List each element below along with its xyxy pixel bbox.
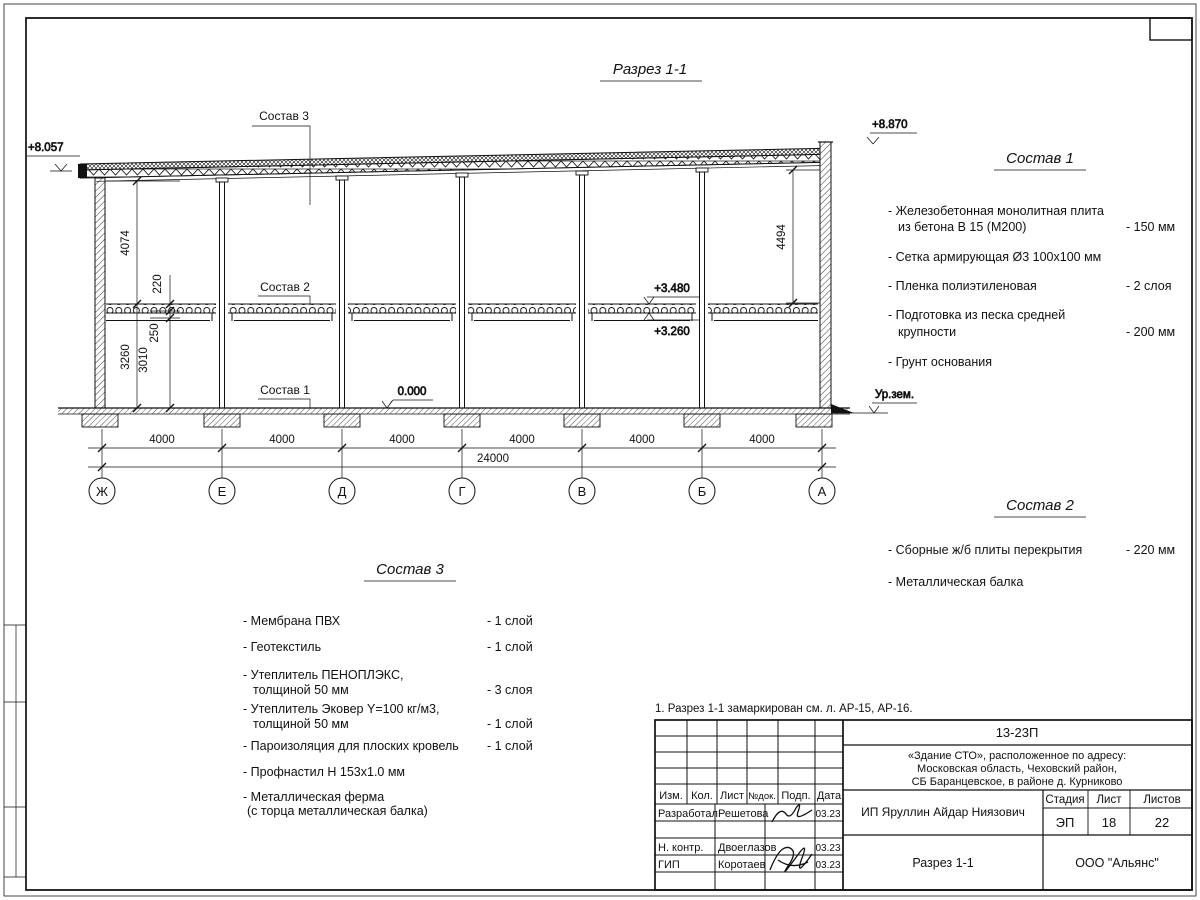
dim-3010: 3010 (138, 347, 150, 373)
axis-label: Г (458, 484, 465, 499)
list-item: толщиной 50 мм (253, 717, 349, 731)
callout-sostav2: Состав 2 (260, 280, 310, 294)
stage-label: Стадия (1045, 794, 1084, 806)
list-value: - 220 мм (1126, 543, 1175, 557)
svg-text:03.23: 03.23 (815, 809, 840, 820)
column (336, 176, 348, 408)
list-value: - 1 слой (487, 614, 533, 628)
corner-stamp-box (1150, 18, 1192, 40)
svg-text:Дата: Дата (817, 790, 842, 802)
list-item: - Мембрана ПВХ (243, 614, 341, 628)
svg-text:Разработал: Разработал (658, 808, 718, 820)
right-wall-parapet (820, 142, 831, 408)
composition1-title: Состав 1 (1006, 150, 1074, 167)
list-item: толщиной 50 мм (253, 683, 349, 697)
composition1-block: Состав 1 - Железобетонная монолитная пли… (888, 150, 1175, 369)
dim-250: 250 (149, 323, 161, 342)
sheets-total: 22 (1155, 815, 1169, 830)
list-item: - Металлическая балка (888, 575, 1023, 589)
project-code: 13-23П (996, 725, 1039, 740)
list-item: - Подготовка из песка средней (888, 308, 1065, 322)
list-item: - Металлическая ферма (243, 790, 384, 804)
composition2-title: Состав 2 (1006, 497, 1074, 514)
axis-label: А (818, 484, 827, 499)
span-dim: 4000 (509, 434, 535, 446)
svg-text:Двоеглазов: Двоеглазов (718, 842, 777, 854)
list-value: - 1 слой (487, 739, 533, 753)
callout-sostav3: Состав 3 (259, 109, 309, 123)
list-item: из бетона В 15 (М200) (898, 220, 1026, 234)
object-address: Московская область, Чеховский район, (917, 763, 1117, 775)
title-block: Изм. Кол. Лист №док. Подп. Дата Разработ… (655, 720, 1192, 890)
svg-text:03.23: 03.23 (815, 843, 840, 854)
callout-sostav1: Состав 1 (260, 383, 310, 397)
axis-label: Д (338, 484, 347, 499)
signature (772, 805, 812, 822)
dimension-chain: 4000 4000 4000 4000 4000 4000 24000 Ж Е … (88, 429, 836, 504)
list-item: - Пленка полиэтиленовая (888, 279, 1037, 293)
dim-220: 220 (152, 274, 164, 293)
dim-3260: 3260 (120, 344, 132, 370)
elev-slab-top-label: +3.480 (654, 283, 690, 295)
list-value: - 1 слой (487, 717, 533, 731)
drawing-title: Разрез 1-1 (613, 61, 687, 78)
column (456, 173, 468, 408)
axis-label: Б (698, 484, 707, 499)
footings (82, 414, 832, 427)
organization: ООО "Альянс" (1075, 856, 1159, 870)
list-item: крупности (898, 325, 956, 339)
list-value: - 150 мм (1126, 220, 1175, 234)
doc-title: Разрез 1-1 (912, 856, 973, 870)
svg-text:Коротаев: Коротаев (718, 859, 766, 871)
span-dim: 4000 (629, 434, 655, 446)
callouts: Состав 3 Состав 2 Состав 1 (252, 109, 310, 408)
object-address: «Здание СТО», расположенное по адресу: (908, 750, 1126, 762)
svg-text:03.23: 03.23 (815, 860, 840, 871)
column (696, 168, 708, 408)
list-value: - 3 слоя (487, 683, 532, 697)
composition2-block: Состав 2 - Сборные ж/б плиты перекрытия … (888, 497, 1175, 589)
list-value: - 200 мм (1126, 325, 1175, 339)
list-item: - Геотекстиль (243, 640, 321, 654)
list-item: - Железобетонная монолитная плита (888, 204, 1104, 218)
svg-text:Решетова: Решетова (718, 808, 769, 820)
stage-value: ЭП (1056, 815, 1075, 830)
composition3-title: Состав 3 (376, 561, 444, 578)
roof (78, 148, 820, 181)
svg-text:Лист: Лист (720, 790, 744, 802)
column (216, 178, 228, 408)
object-address: СБ Баранцевское, в районе д. Курниково (912, 776, 1123, 788)
drawing-sheet: Разрез 1-1 (0, 0, 1200, 900)
sheets-label: Листов (1143, 794, 1180, 806)
elev-right-label: +8.870 (872, 119, 908, 131)
list-item: - Грунт основания (888, 355, 992, 369)
sheet-note: 1. Разрез 1-1 замаркирован см. л. АР-15,… (655, 703, 913, 715)
building-section (58, 142, 888, 427)
roof-edge-cap (78, 164, 87, 178)
list-item: - Сборные ж/б плиты перекрытия (888, 543, 1082, 557)
span-dim: 4000 (749, 434, 775, 446)
ground-level-label: Ур.зем. (875, 389, 914, 401)
svg-text:Изм.: Изм. (659, 790, 683, 802)
list-item: - Профнастил Н 153х1.0 мм (243, 765, 405, 779)
dim-4494: 4494 (776, 224, 788, 250)
axis-bubbles: Ж Е Д Г В Б А (89, 478, 835, 504)
svg-text:Н. контр.: Н. контр. (658, 842, 703, 854)
blind-area (831, 404, 854, 413)
axis-label: Ж (96, 484, 108, 499)
list-value: - 2 слоя (1126, 279, 1171, 293)
span-dim: 4000 (269, 434, 295, 446)
column (576, 171, 588, 408)
elev-slab-bot-label: +3.260 (654, 326, 690, 338)
svg-text:ГИП: ГИП (658, 859, 680, 871)
ground (58, 404, 888, 427)
total-dim: 24000 (477, 453, 509, 465)
composition3-block: Состав 3 - Мембрана ПВХ - 1 слой - Геоте… (243, 561, 533, 818)
company-name: ИП Яруллин Айдар Ниязович (861, 805, 1025, 819)
left-wall (95, 178, 105, 408)
list-item: - Пароизоляция для плоских кровель (243, 739, 459, 753)
svg-text:№док.: №док. (748, 791, 776, 802)
axis-label: Е (218, 484, 227, 499)
svg-text:Подп.: Подп. (781, 790, 810, 802)
span-dim: 4000 (389, 434, 415, 446)
svg-text:Кол.: Кол. (691, 790, 713, 802)
elev-floor-label: 0.000 (398, 386, 427, 398)
list-item: (с торца металлическая балка) (247, 804, 428, 818)
list-item: - Сетка армирующая Ø3 100х100 мм (888, 250, 1101, 264)
list-item: - Утеплитель Эковер Y=100 кг/м3, (243, 702, 439, 716)
span-dim: 4000 (149, 434, 175, 446)
sheet-label: Лист (1097, 794, 1123, 806)
elev-left-label: +8.057 (28, 142, 64, 154)
axis-label: В (578, 484, 587, 499)
list-item: - Утеплитель ПЕНОПЛЭКС, (243, 668, 403, 682)
dim-4074: 4074 (120, 230, 132, 256)
left-margin-boxes (4, 625, 26, 877)
section-drawing-svg: Разрез 1-1 (0, 0, 1200, 900)
sheet-number: 18 (1102, 815, 1116, 830)
list-value: - 1 слой (487, 640, 533, 654)
